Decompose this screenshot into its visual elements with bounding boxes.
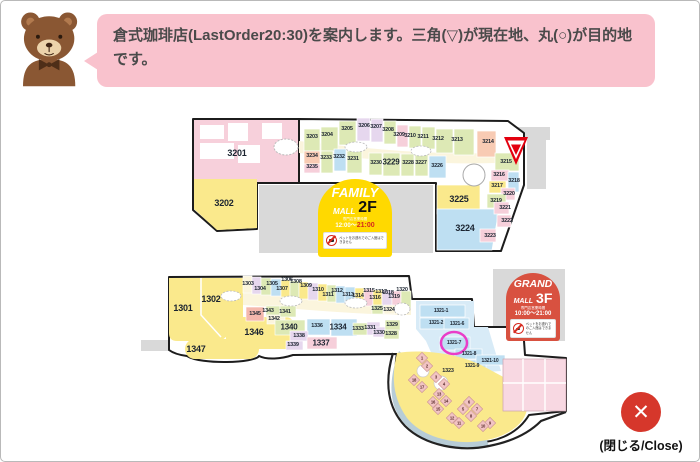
stall-label-12: 12 — [450, 416, 454, 421]
shop-label-1333: 1333 — [352, 326, 363, 332]
shop-label-3209: 3209 — [393, 132, 404, 138]
shop-label-1319: 1319 — [388, 294, 399, 300]
shop-label-3231: 3231 — [347, 156, 358, 162]
shop-label-3214: 3214 — [482, 139, 493, 145]
shop-label-3205: 3205 — [341, 126, 352, 132]
shop-label-3228: 3228 — [402, 160, 413, 166]
shop-label-3201: 3201 — [227, 148, 246, 158]
kiosk-screen: 倉式珈琲店(LastOrder20:30)を案内します。三角(▽)が現在地、丸(… — [0, 0, 700, 462]
family-mall-name: FAMILY — [318, 186, 392, 199]
stall-label-16: 16 — [431, 400, 435, 405]
shop-label-3224: 3224 — [455, 223, 474, 233]
shop-label-1321-8: 1321-8 — [462, 351, 476, 357]
shop-label-3221: 3221 — [499, 205, 510, 211]
grand-pet-text: ペットをお連れでのご入館はできません — [526, 322, 553, 335]
shop-label-1302: 1302 — [201, 294, 220, 304]
shop-label-3233: 3233 — [320, 155, 331, 161]
shop-label-1316: 1316 — [369, 295, 380, 301]
shop-label-1325: 1325 — [371, 306, 382, 312]
shop-label-3232: 3232 — [333, 154, 344, 160]
shop-label-1301: 1301 — [173, 303, 192, 313]
shop-label-1339: 1339 — [287, 342, 298, 348]
shop-label-1314: 1314 — [352, 293, 363, 299]
shop-label-1324: 1324 — [383, 307, 394, 313]
shop-label-1321-9: 1321-9 — [465, 363, 479, 369]
no-pets-icon — [513, 323, 524, 334]
shop-label-3206: 3206 — [358, 123, 369, 129]
shop-label-1315: 1315 — [363, 288, 374, 294]
shop-label-3203: 3203 — [306, 134, 317, 140]
shop-label-1341: 1341 — [279, 309, 290, 315]
shop-label-1321-7: 1321-7 — [447, 340, 461, 346]
stall-label-18: 18 — [412, 378, 416, 383]
shop-label-1345: 1345 — [249, 311, 260, 317]
close-icon[interactable]: ✕ — [621, 392, 661, 432]
floor2-map: 3201 3202 3203 3204 3205 3206 3207 3208 … — [186, 109, 571, 259]
shop-label-1307: 1307 — [276, 286, 287, 292]
shop-label-3227: 3227 — [415, 160, 426, 166]
shop-label-3223: 3223 — [484, 233, 495, 239]
shop-label-3215: 3215 — [500, 159, 511, 165]
stall-label-5: 5 — [462, 407, 464, 412]
shop-label-1336: 1336 — [311, 323, 322, 329]
shop-label-3220: 3220 — [503, 191, 514, 197]
close-glyph: ✕ — [632, 402, 650, 423]
family-hours-open: 12:00〜 — [335, 223, 356, 229]
family-mall-floor: 2F — [358, 200, 377, 216]
shop-label-1304: 1304 — [254, 286, 265, 292]
guidance-text: 倉式珈琲店(LastOrder20:30)を案内します。三角(▽)が現在地、丸(… — [113, 27, 632, 68]
family-hours-close: 21:00 — [357, 222, 375, 229]
shop-label-1321-10: 1321-10 — [482, 358, 499, 364]
shop-label-3219: 3219 — [490, 198, 501, 204]
shop-label-3204: 3204 — [321, 132, 332, 138]
stall-label-3: 3 — [435, 375, 437, 380]
shop-label-3216: 3216 — [493, 172, 504, 178]
shop-label-1321-1: 1321-1 — [434, 308, 448, 314]
bear-mascot — [9, 7, 93, 87]
shop-label-1338: 1338 — [293, 333, 304, 339]
shop-label-3208: 3208 — [382, 127, 393, 133]
no-pets-icon — [326, 235, 337, 246]
shop-label-3212: 3212 — [432, 136, 443, 142]
stall-label-7: 7 — [476, 407, 478, 412]
stall-label-13: 13 — [437, 392, 441, 397]
stall-label-14: 14 — [444, 399, 448, 404]
family-mall-badge: FAMILY MALL 2F 専門店営業時間 12:00〜21:00 ペットをお… — [318, 179, 392, 257]
family-mall-word: MALL — [333, 208, 355, 216]
shop-label-1329: 1329 — [386, 322, 397, 328]
shop-label-3207: 3207 — [370, 124, 381, 130]
shop-label-3235: 3235 — [306, 164, 317, 170]
shop-label-3202: 3202 — [214, 198, 233, 208]
shop-label-1320: 1320 — [396, 287, 407, 293]
shop-label-3211: 3211 — [417, 134, 428, 140]
shop-label-3234: 3234 — [306, 153, 317, 159]
stall-label-1: 1 — [421, 356, 423, 361]
grand-mall-floor: 3F — [536, 291, 552, 305]
shop-label-1347: 1347 — [186, 344, 205, 354]
shop-label-3226: 3226 — [431, 163, 442, 169]
shop-label-3210: 3210 — [404, 133, 415, 139]
guidance-bubble: 倉式珈琲店(LastOrder20:30)を案内します。三角(▽)が現在地、丸(… — [97, 14, 655, 87]
floor3-pink-area — [503, 359, 566, 411]
shop-label-1334: 1334 — [330, 323, 347, 332]
shop-label-1337: 1337 — [313, 339, 330, 348]
shop-label-3222: 3222 — [501, 218, 512, 224]
grand-mall-badge: GRAND MALL 3F 専門店営業時間 10:00〜21:00 ペットをお連… — [506, 273, 560, 341]
shop-label-1342: 1342 — [268, 316, 279, 322]
grand-pet-sign: ペットをお連れでのご入館はできません — [510, 319, 556, 338]
close-button-label: (閉じる/Close) — [593, 435, 689, 454]
shop-label-1328: 1328 — [385, 331, 396, 337]
shop-label-1330: 1330 — [373, 330, 384, 336]
floor3-map: 1301 1302 1303 1304 1305 1306 1307 1308 … — [141, 263, 601, 451]
stall-label-6: 6 — [468, 400, 470, 405]
shop-label-1340: 1340 — [281, 323, 298, 332]
shop-label-1321-6: 1321-6 — [450, 321, 464, 327]
shop-label-1303: 1303 — [242, 281, 253, 287]
grand-mall-name: GRAND — [506, 279, 560, 290]
shop-label-3218: 3218 — [508, 178, 519, 184]
shop-label-1346: 1346 — [244, 327, 263, 337]
family-pet-sign: ペットをお連れでのご入館はできません — [323, 232, 387, 249]
floor2-rotunda — [463, 164, 485, 186]
shop-label-1309: 1309 — [300, 283, 311, 289]
shop-label-1321-2: 1321-2 — [429, 320, 443, 326]
grand-hours-open: 10:00〜 — [515, 311, 536, 317]
shop-label-3230: 3230 — [370, 160, 381, 166]
shop-label-3213: 3213 — [451, 137, 462, 143]
stall-label-8: 8 — [470, 414, 472, 419]
stall-label-17: 17 — [420, 385, 424, 390]
shop-label-3229: 3229 — [383, 158, 400, 167]
stall-label-9: 9 — [489, 421, 491, 426]
shop-label-3217: 3217 — [491, 183, 502, 189]
close-button[interactable]: ✕ (閉じる/Close) — [593, 392, 689, 454]
family-pet-text: ペットをお連れでのご入館はできません — [339, 236, 384, 245]
stall-label-15: 15 — [436, 407, 440, 412]
stall-label-10: 10 — [481, 424, 485, 429]
shop-label-3225: 3225 — [449, 194, 468, 204]
shop-label-1312: 1312 — [331, 288, 342, 294]
grand-mall-word: MALL — [514, 298, 533, 305]
shop-label-1343: 1343 — [262, 308, 273, 314]
stall-label-4: 4 — [443, 382, 445, 387]
stall-label-2: 2 — [426, 364, 428, 369]
shop-label-1323: 1323 — [442, 368, 453, 374]
stall-label-11: 11 — [457, 421, 461, 426]
grand-hours-close: 21:00 — [536, 311, 551, 317]
